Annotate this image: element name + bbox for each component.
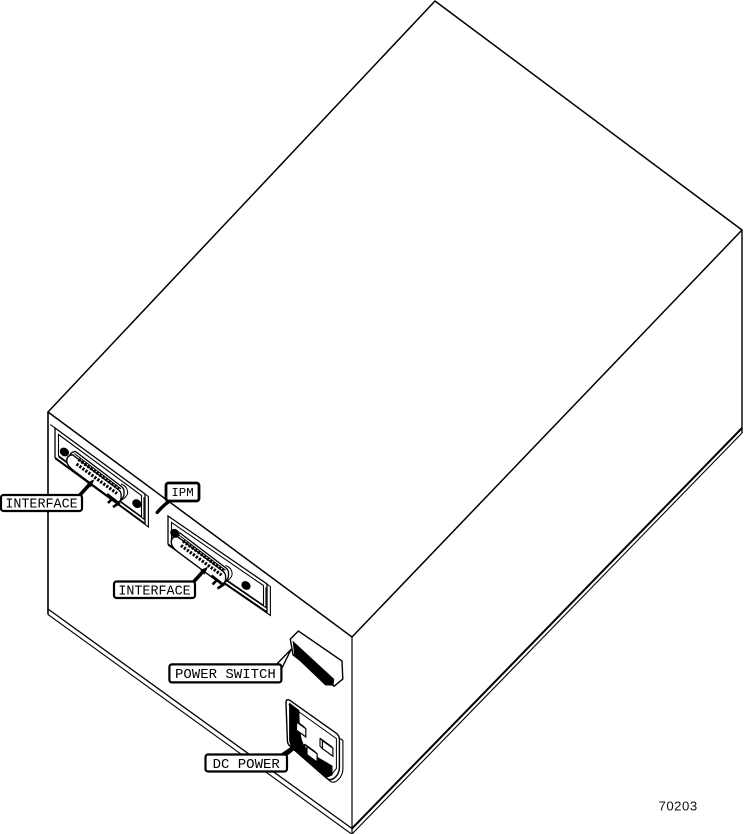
svg-text:70203: 70203: [659, 799, 698, 814]
svg-text:INTERFACE: INTERFACE: [5, 498, 77, 513]
svg-text:IPM: IPM: [171, 486, 193, 500]
svg-text:POWER SWITCH: POWER SWITCH: [175, 667, 276, 683]
svg-text:DC POWER: DC POWER: [213, 757, 281, 773]
svg-text:INTERFACE: INTERFACE: [118, 584, 190, 599]
